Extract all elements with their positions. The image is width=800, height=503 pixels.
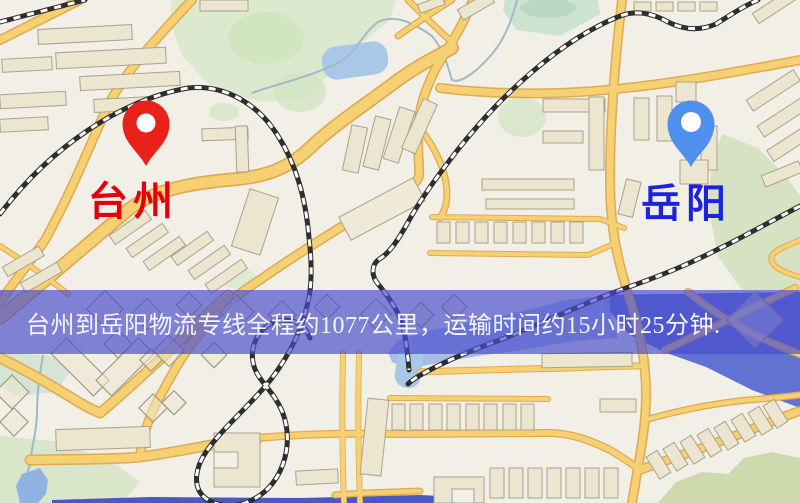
route-info-text: 台州到岳阳物流专线全程约1077公里，运输时间约15小时25分钟. — [0, 305, 721, 340]
destination-city-label: 岳阳 — [641, 184, 731, 224]
route-info-banner: 台州到岳阳物流专线全程约1077公里，运输时间约15小时25分钟. — [0, 290, 800, 354]
taizhou-pin-icon — [123, 101, 170, 167]
map-image — [0, 0, 800, 503]
origin-city-label: 台州 — [88, 182, 178, 222]
map-screenshot: 台州 岳阳 台州到岳阳物流专线全程约1077公里，运输时间约15小时25分钟. — [0, 0, 800, 503]
